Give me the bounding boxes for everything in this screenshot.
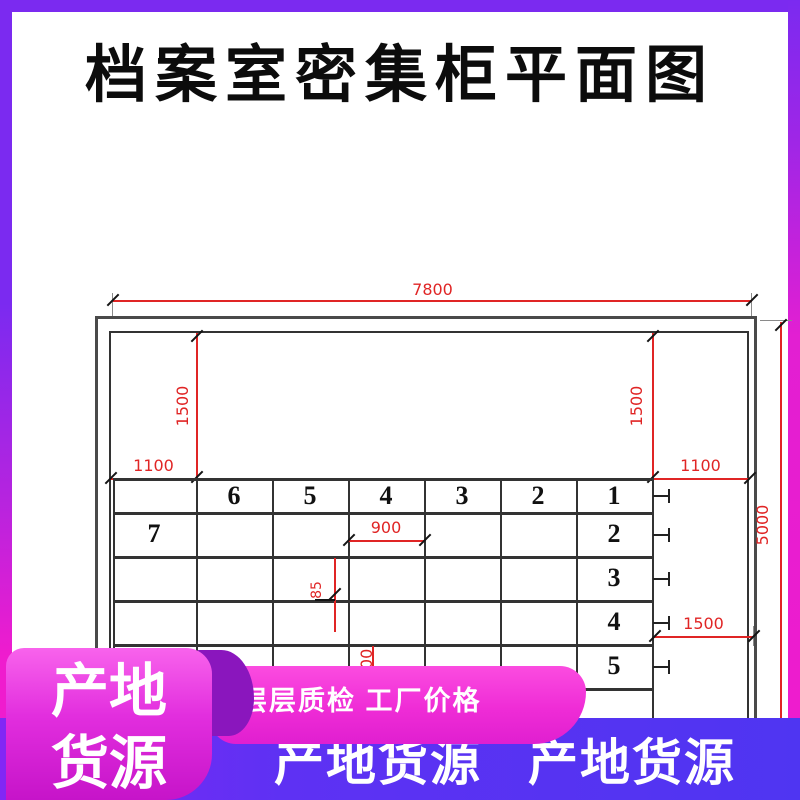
grid-line bbox=[113, 600, 654, 603]
crank-handle-icon bbox=[668, 489, 670, 503]
crank-handle-icon bbox=[668, 572, 670, 586]
dim-label-5000: 5000 bbox=[754, 495, 772, 555]
dim-label-7800: 7800 bbox=[113, 280, 752, 299]
cabinet-number: 5 bbox=[290, 481, 330, 511]
ribbon-line1: 产地 bbox=[6, 656, 212, 728]
cabinet-number: 4 bbox=[366, 481, 406, 511]
cabinet-number: 6 bbox=[214, 481, 254, 511]
dim-label-85: 85 bbox=[308, 570, 326, 610]
crank-handle-icon bbox=[653, 534, 669, 536]
dim-label-1100-right: 1100 bbox=[652, 456, 749, 475]
dim-label-1500-clearance: 1500 bbox=[654, 614, 753, 633]
grid-line bbox=[113, 556, 654, 559]
cabinet-number: 3 bbox=[442, 481, 482, 511]
row-number: 5 bbox=[594, 651, 634, 681]
cabinet-number-7: 7 bbox=[134, 519, 174, 549]
cabinet-number: 2 bbox=[518, 481, 558, 511]
dim-label-1100-left: 1100 bbox=[110, 456, 197, 475]
dim-line-900 bbox=[348, 540, 424, 542]
dim-label-900: 900 bbox=[348, 518, 424, 537]
quality-pill-text: 层层质检 工厂价格 bbox=[240, 666, 482, 736]
row-number: 3 bbox=[594, 563, 634, 593]
dim-line-5000 bbox=[780, 322, 782, 718]
dim-line-1100-right bbox=[652, 478, 749, 480]
crank-handle-icon bbox=[653, 578, 669, 580]
dim-label-1500-right: 1500 bbox=[628, 376, 646, 436]
product-image: 档案室密集柜平面图 7800 5000 1500 1500 1100 11 bbox=[0, 0, 800, 800]
origin-ribbon-text: 产地 货源 bbox=[6, 656, 212, 800]
grid-line bbox=[113, 512, 654, 515]
cabinet-number: 1 bbox=[594, 481, 634, 511]
crank-handle-icon bbox=[653, 495, 669, 497]
crank-handle-icon bbox=[653, 666, 669, 668]
dim-line-7800 bbox=[113, 300, 752, 302]
dim-label-1500-left: 1500 bbox=[174, 376, 192, 436]
row-number: 4 bbox=[594, 607, 634, 637]
row-number: 2 bbox=[594, 519, 634, 549]
crank-handle-icon bbox=[668, 528, 670, 542]
crank-handle-icon bbox=[668, 660, 670, 674]
dim-line-1500-clearance bbox=[654, 636, 753, 638]
ribbon-line2: 货源 bbox=[6, 728, 212, 800]
origin-ribbon: 产地 货源 bbox=[6, 648, 212, 800]
grid-line bbox=[113, 644, 654, 647]
quality-pill-banner: 层层质检 工厂价格 bbox=[210, 666, 586, 744]
